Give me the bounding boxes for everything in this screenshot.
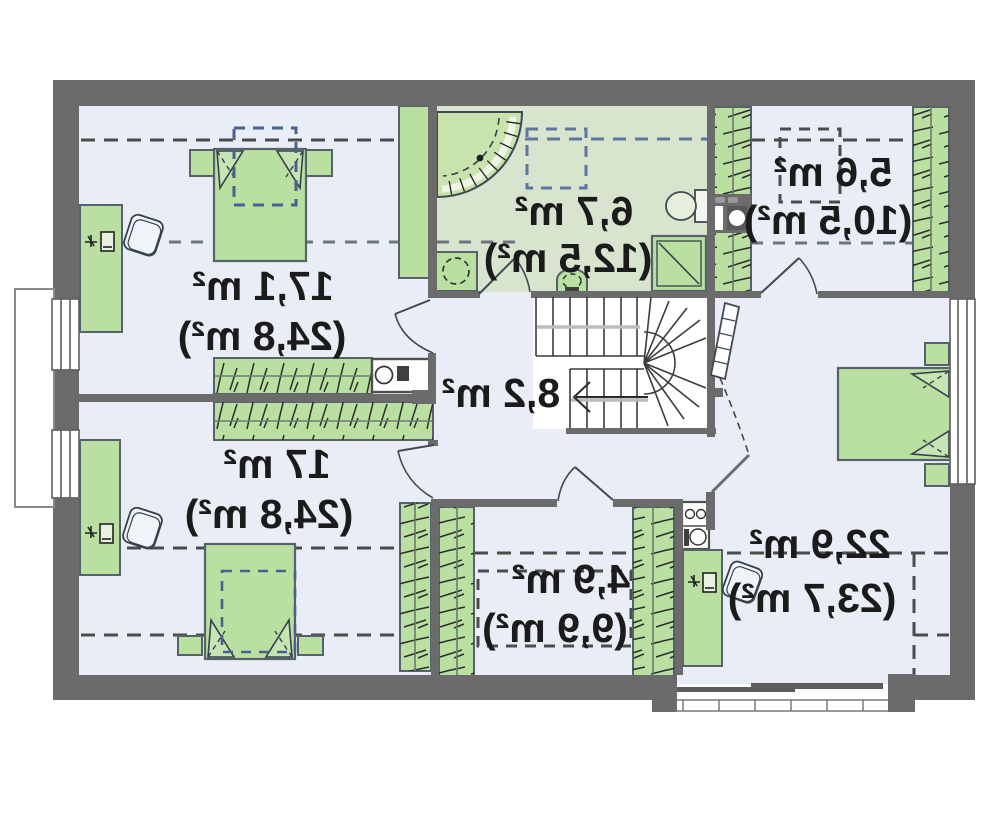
- svg-text:17 m²: 17 m²: [223, 441, 330, 487]
- svg-text:(23,7 m²): (23,7 m²): [728, 575, 897, 621]
- svg-text:(10,5 m²): (10,5 m²): [744, 197, 913, 243]
- svg-text:5,6 m²: 5,6 m²: [774, 149, 893, 195]
- svg-text:22,9 m²: 22,9 m²: [749, 521, 890, 567]
- svg-text:8,2 m²: 8,2 m²: [442, 370, 561, 416]
- svg-text:(24,8 m²): (24,8 m²): [178, 313, 347, 359]
- svg-text:4,9 m²: 4,9 m²: [512, 556, 631, 602]
- svg-text:17,1 m²: 17,1 m²: [192, 263, 333, 309]
- svg-text:(12,5 m²): (12,5 m²): [484, 235, 653, 281]
- svg-text:(24,8 m²): (24,8 m²): [185, 491, 354, 537]
- svg-text:6,7 m²: 6,7 m²: [515, 188, 634, 234]
- svg-text:(9,9 m²): (9,9 m²): [482, 605, 628, 651]
